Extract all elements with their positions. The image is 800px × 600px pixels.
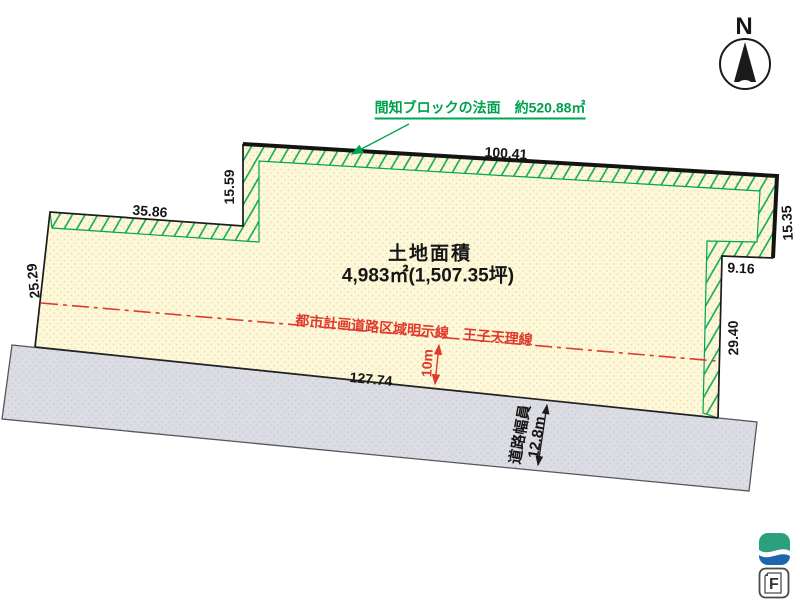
compass-north-label: N — [735, 15, 752, 39]
brand-logo-green — [759, 533, 790, 552]
land-survey-diagram: F N 間知ブロックの法面 約520.88㎡ 100.41 35.86 15.5… — [0, 0, 800, 600]
f-icon-letter: F — [769, 576, 779, 593]
compass-needle-notch — [739, 80, 751, 86]
slope-annotation: 間知ブロックの法面 約520.88㎡ — [375, 101, 586, 120]
land-area-value: 4,983㎡(1,507.35坪) — [342, 267, 514, 286]
land-area-title: 土地面積 — [388, 245, 472, 264]
site-plan-svg: F — [0, 0, 800, 600]
dim-step-left: 15.59 — [222, 169, 236, 204]
dim-step-right: 9.16 — [727, 260, 755, 275]
dim-bottom-edge: 127.74 — [349, 370, 393, 388]
slope-note-leader-arrow — [352, 124, 409, 154]
offset-10m-label: 10m — [419, 349, 434, 378]
brand-logo — [759, 533, 790, 565]
dim-top-left-edge: 35.86 — [132, 203, 168, 220]
dim-right-lower-edge: 29.40 — [726, 320, 741, 355]
dim-left-edge: 25.29 — [24, 263, 42, 299]
dim-right-upper-edge: 15.35 — [779, 205, 795, 241]
dim-top-edge: 100.41 — [484, 145, 528, 162]
document-f-icon: F — [760, 569, 789, 598]
